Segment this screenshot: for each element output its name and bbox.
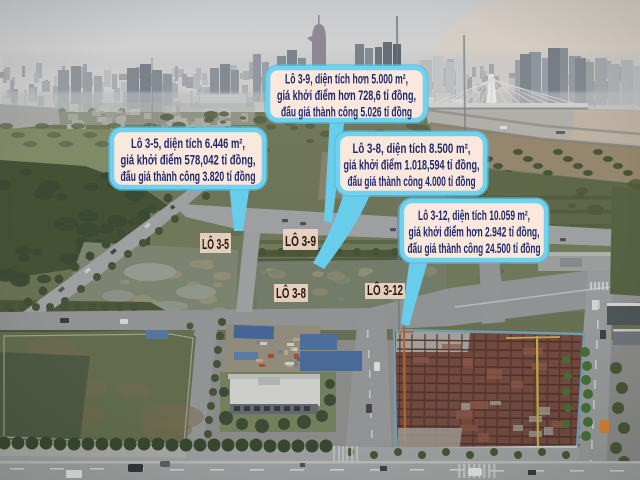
svg-text:giá khởi điểm 578,042 tỉ đồng,: giá khởi điểm 578,042 tỉ đồng, [121,153,256,168]
svg-text:giá khởi điểm 1.018,594 tỉ đồn: giá khởi điểm 1.018,594 tỉ đồng, [344,158,480,173]
svg-text:Lô 3-5, diện tích 6.446 m²,: Lô 3-5, diện tích 6.446 m², [131,136,245,151]
svg-text:đấu giá thành công 3.820 tỉ đồ: đấu giá thành công 3.820 tỉ đồng [121,169,256,184]
svg-text:đấu giá thành công 5.026 tỉ đồ: đấu giá thành công 5.026 tỉ đồng [281,104,412,119]
svg-text:giá khởi điểm hơn 728,6 tỉ đồn: giá khởi điểm hơn 728,6 tỉ đồng, [277,88,416,103]
svg-text:LÔ 3-5: LÔ 3-5 [202,235,229,253]
svg-text:LÔ 3-9: LÔ 3-9 [285,232,316,250]
svg-text:LÔ 3-12: LÔ 3-12 [367,281,403,299]
svg-text:đấu giá thành công 24.500 tỉ đ: đấu giá thành công 24.500 tỉ đồng [408,241,541,256]
svg-text:LÔ 3-8: LÔ 3-8 [276,284,306,302]
svg-text:giá khởi điểm hơn 2.942 tỉ đồn: giá khởi điểm hơn 2.942 tỉ đồng, [409,225,540,240]
svg-text:đấu giá thành công 4.000 tỉ đồ: đấu giá thành công 4.000 tỉ đồng [348,174,476,189]
svg-text:Lô 3-8, diện tích 8.500 m²,: Lô 3-8, diện tích 8.500 m², [353,141,471,156]
svg-text:Lô 3-12, diện tích 10.059 m²,: Lô 3-12, diện tích 10.059 m², [418,208,530,223]
svg-text:Lô 3-9, diện tích hơn 5.000 m²: Lô 3-9, diện tích hơn 5.000 m², [285,72,408,87]
